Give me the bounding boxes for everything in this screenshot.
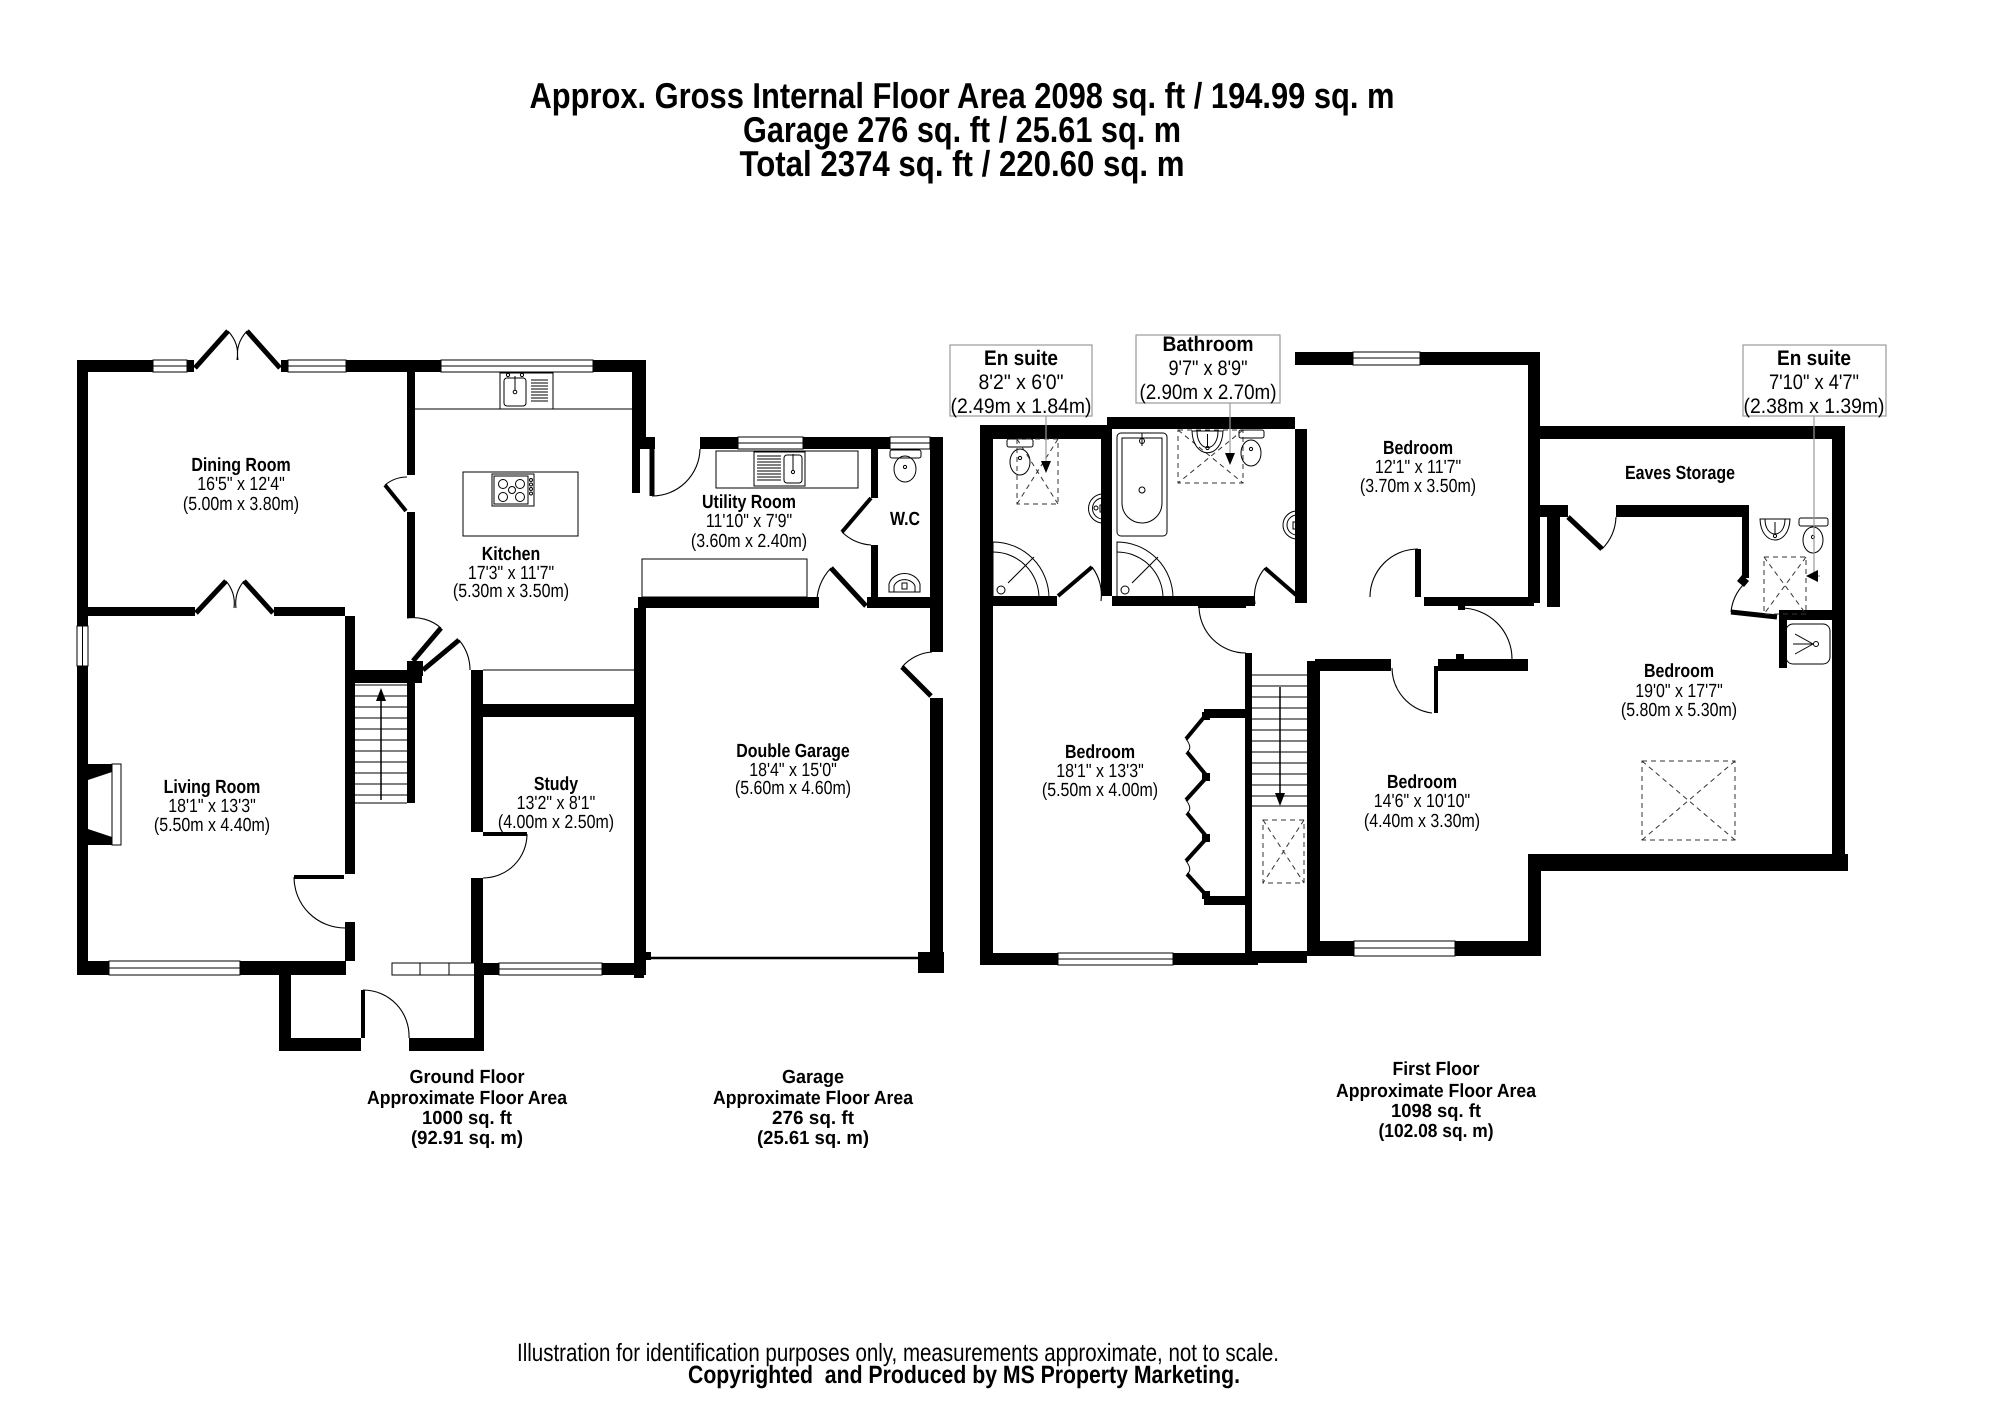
svg-text:(2.38m x 1.39m): (2.38m x 1.39m) [1744,395,1885,418]
svg-text:Bedroom: Bedroom [1065,742,1135,763]
svg-text:Ground Floor: Ground Floor [410,1067,526,1088]
svg-text:En suite: En suite [1777,347,1851,370]
svg-text:(102.08 sq. m): (102.08 sq. m) [1379,1121,1494,1142]
svg-text:(2.49m x 1.84m): (2.49m x 1.84m) [951,395,1092,418]
svg-text:18'1" x 13'3": 18'1" x 13'3" [168,796,256,817]
svg-text:En suite: En suite [984,347,1058,370]
svg-text:16'5" x 12'4": 16'5" x 12'4" [197,474,285,495]
svg-text:Bedroom: Bedroom [1644,661,1714,682]
svg-text:(92.91 sq. m): (92.91 sq. m) [411,1128,523,1149]
svg-text:(25.61 sq. m): (25.61 sq. m) [757,1128,869,1149]
svg-text:(3.60m x 2.40m): (3.60m x 2.40m) [691,531,807,552]
svg-text:1000 sq. ft: 1000 sq. ft [422,1108,513,1129]
svg-text:(5.60m x 4.60m): (5.60m x 4.60m) [735,778,851,799]
svg-text:14'6" x 10'10": 14'6" x 10'10" [1374,791,1470,812]
svg-text:Approximate Floor Area: Approximate Floor Area [367,1088,567,1109]
svg-text:Study: Study [534,774,579,795]
svg-text:W.C: W.C [890,509,920,530]
svg-text:(2.90m x 2.70m): (2.90m x 2.70m) [1140,381,1277,404]
svg-text:7'10" x 4'7": 7'10" x 4'7" [1769,371,1859,394]
svg-text:276 sq. ft: 276 sq. ft [772,1108,855,1129]
svg-text:19'0" x 17'7": 19'0" x 17'7" [1635,681,1723,702]
svg-text:Living Room: Living Room [164,777,261,798]
svg-text:Kitchen: Kitchen [482,544,541,565]
svg-text:Dining Room: Dining Room [191,455,290,476]
svg-text:9'7" x 8'9": 9'7" x 8'9" [1169,357,1248,380]
svg-text:(3.70m x 3.50m): (3.70m x 3.50m) [1360,476,1476,497]
svg-text:Garage: Garage [782,1067,844,1088]
svg-text:(4.00m x 2.50m): (4.00m x 2.50m) [498,812,614,833]
svg-text:Approximate Floor Area: Approximate Floor Area [1336,1081,1536,1102]
svg-text:11'10" x 7'9": 11'10" x 7'9" [706,511,792,532]
svg-text:Eaves Storage: Eaves Storage [1625,463,1735,484]
svg-text:Total 2374 sq. ft / 220.60 sq.: Total 2374 sq. ft / 220.60 sq. m [740,143,1185,184]
svg-text:Double Garage: Double Garage [736,741,850,762]
svg-text:18'1" x 13'3": 18'1" x 13'3" [1056,761,1144,782]
svg-text:Copyrighted and Produced by M: Copyrighted and Produced by MS Property … [688,1361,1240,1389]
svg-text:1098 sq. ft: 1098 sq. ft [1391,1101,1482,1122]
svg-text:Utility Room: Utility Room [702,492,796,513]
svg-text:12'1" x 11'7": 12'1" x 11'7" [1375,457,1461,478]
svg-text:(5.50m x 4.00m): (5.50m x 4.00m) [1042,780,1158,801]
svg-text:Approximate Floor Area: Approximate Floor Area [713,1088,913,1109]
svg-text:(5.80m x 5.30m): (5.80m x 5.30m) [1621,700,1737,721]
svg-text:13'2" x 8'1": 13'2" x 8'1" [517,793,596,814]
svg-text:(4.40m x 3.30m): (4.40m x 3.30m) [1364,811,1480,832]
svg-text:(5.00m x 3.80m): (5.00m x 3.80m) [183,494,299,515]
svg-text:Bedroom: Bedroom [1383,438,1453,459]
svg-text:Bathroom: Bathroom [1163,333,1254,356]
svg-text:8'2" x 6'0": 8'2" x 6'0" [979,371,1064,394]
svg-text:First Floor: First Floor [1393,1059,1481,1080]
svg-text:(5.30m x 3.50m): (5.30m x 3.50m) [453,581,569,602]
svg-text:Bedroom: Bedroom [1387,772,1457,793]
svg-text:(5.50m x 4.40m): (5.50m x 4.40m) [154,815,270,836]
